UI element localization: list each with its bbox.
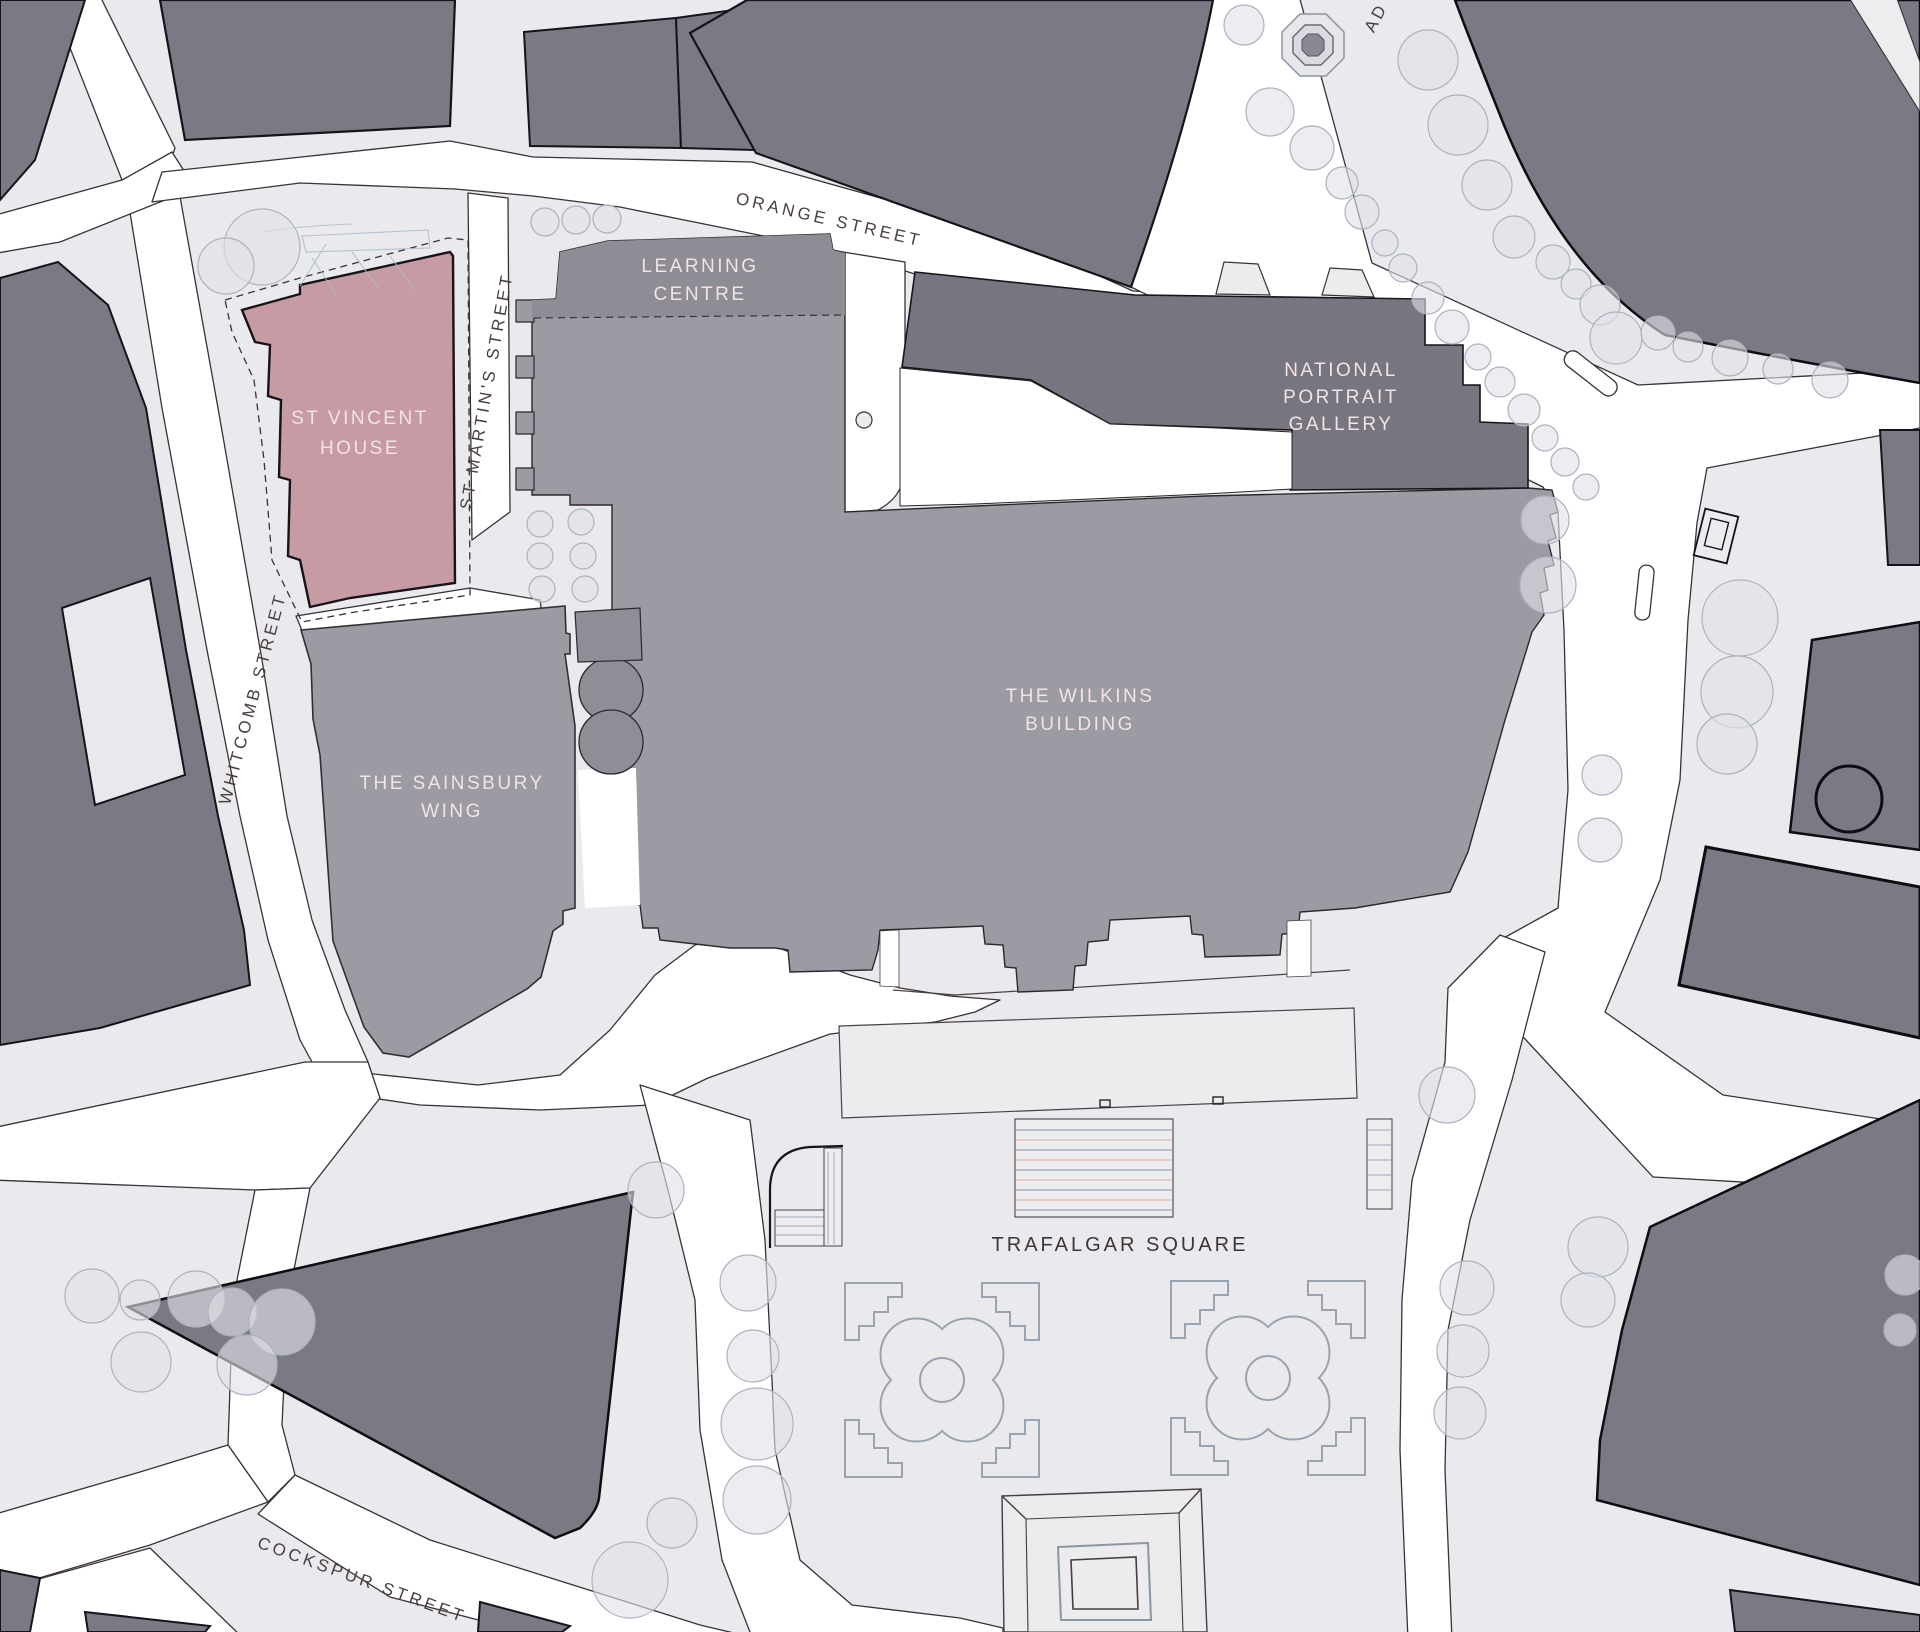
svg-text:PORTRAIT: PORTRAIT (1283, 387, 1399, 408)
svg-text:GALLERY: GALLERY (1289, 414, 1394, 435)
svg-text:CENTRE: CENTRE (653, 284, 746, 305)
svg-text:LEARNING: LEARNING (641, 256, 758, 277)
svg-text:HOUSE: HOUSE (320, 438, 400, 459)
svg-text:THE SAINSBURY: THE SAINSBURY (359, 773, 544, 794)
svg-text:WING: WING (421, 801, 483, 822)
svg-text:TRAFALGAR SQUARE: TRAFALGAR SQUARE (992, 1234, 1249, 1256)
svg-text:NATIONAL: NATIONAL (1284, 360, 1398, 381)
svg-text:ST VINCENT: ST VINCENT (291, 408, 429, 429)
svg-text:THE WILKINS: THE WILKINS (1006, 686, 1155, 707)
svg-text:BUILDING: BUILDING (1025, 714, 1135, 735)
